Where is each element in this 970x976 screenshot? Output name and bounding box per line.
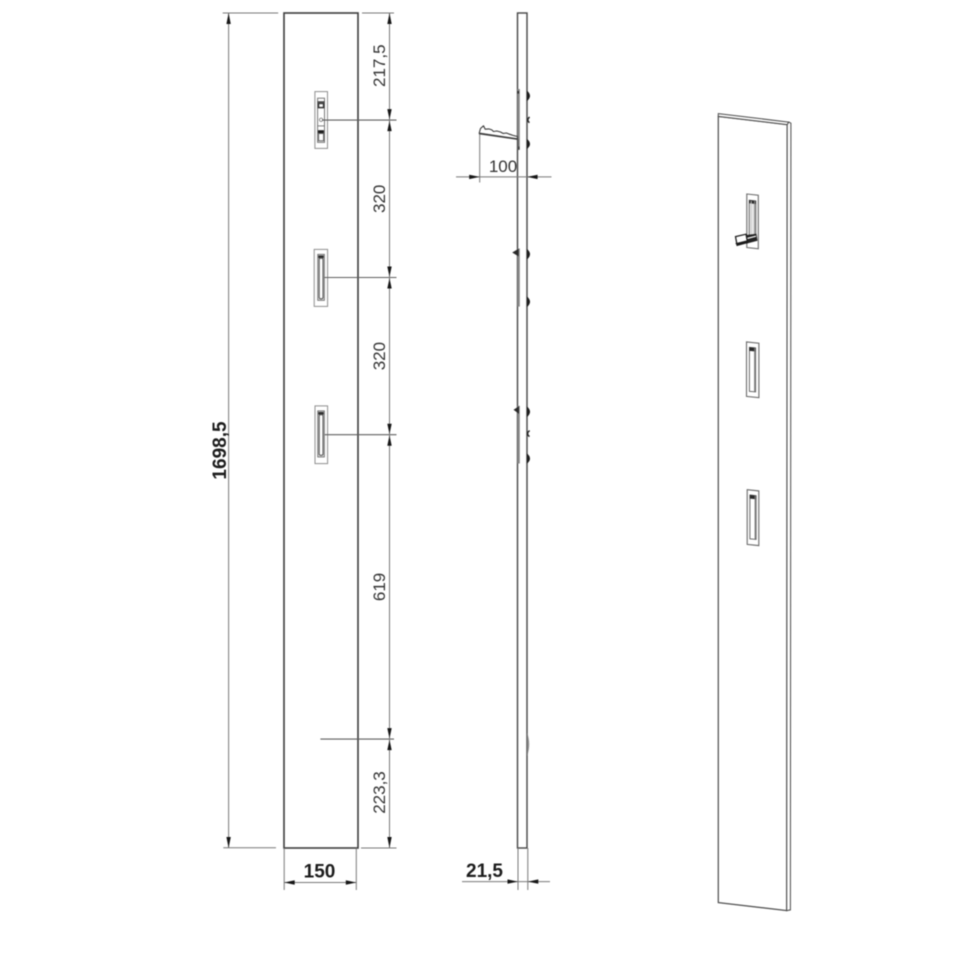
svg-text:100: 100 bbox=[489, 157, 517, 176]
svg-text:320: 320 bbox=[370, 342, 389, 370]
svg-text:320: 320 bbox=[370, 185, 389, 213]
svg-text:21,5: 21,5 bbox=[466, 861, 503, 882]
svg-text:150: 150 bbox=[304, 862, 336, 883]
svg-text:619: 619 bbox=[370, 573, 389, 601]
svg-text:223,3: 223,3 bbox=[370, 771, 389, 814]
svg-text:217,5: 217,5 bbox=[370, 44, 389, 87]
svg-text:1698,5: 1698,5 bbox=[210, 421, 231, 480]
